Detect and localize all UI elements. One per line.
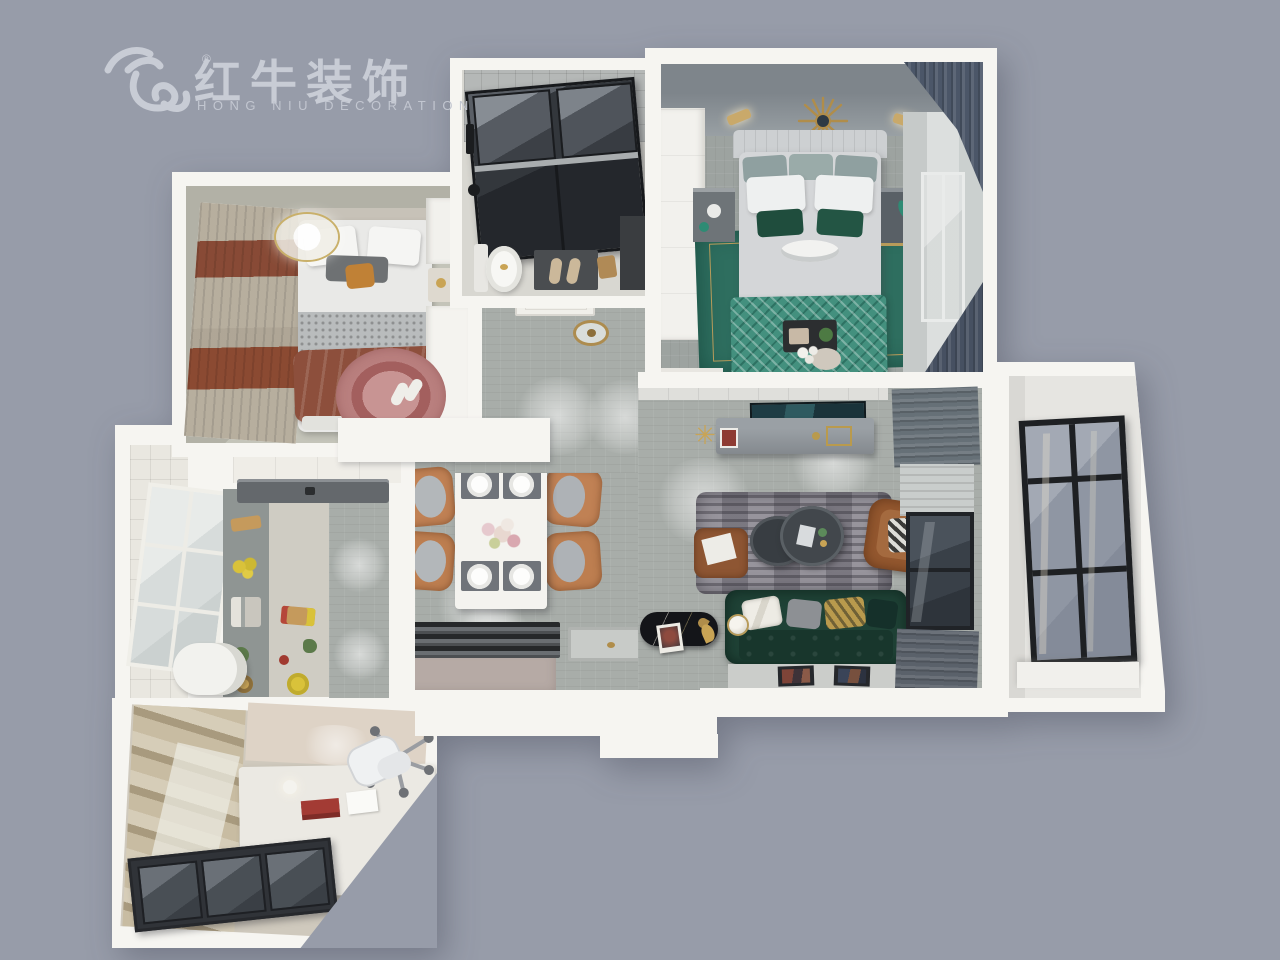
sofa-seat-front [739,630,893,660]
window-reflection [1087,431,1097,652]
sheer-blind [900,464,974,516]
greens [303,639,317,653]
living-window [906,512,974,630]
room-secondary-bedroom [172,172,482,457]
gold-floor-ornament [573,320,609,346]
apartment-floor-plan: ✳ [0,0,1280,960]
dining-chair [543,530,603,592]
pillow-white [814,175,874,214]
window-mullion [1069,424,1087,658]
plate [509,564,534,589]
downlight-pool [331,537,387,593]
red-decor-box [720,428,738,448]
yellow-bowl [287,673,309,695]
tray-book [789,328,809,344]
red-rose [279,655,289,665]
hood-light [305,487,315,495]
pillow-green [816,208,864,237]
shower-fixture [466,124,474,154]
shower-head [468,184,480,196]
pillow-green [756,208,804,237]
pillow-gray [786,598,823,629]
table-magazine [796,525,816,548]
chair-cushion [413,539,448,583]
pillow-dark-green [865,598,899,630]
art-image [838,669,866,684]
nightstand-left [693,188,735,242]
ottoman [694,528,748,578]
bull-swoosh-icon [98,40,198,122]
wall-art [834,665,871,686]
watermark-logo: ® 红牛装饰 HONG NIU DECORATION [98,28,458,123]
gold-frame-decor [826,426,852,446]
glass-panel-reflection [472,89,556,166]
kitchen-counter [269,489,329,697]
room-study [112,698,437,948]
room-living-room: ✳ [638,372,1008,717]
gray-curtain-top [892,387,981,468]
cutting-board [230,515,262,532]
slipper [402,377,424,403]
room-balcony [995,362,1165,712]
leaning-art-card [656,622,684,653]
keys-decor [607,642,615,648]
room-master-bedroom [645,48,997,398]
ornament-center [587,329,596,337]
wall-art [778,665,815,686]
pillow-mustard [345,263,375,290]
range-hood [237,479,389,503]
pillow-white [746,175,806,214]
ottoman-paper [701,533,736,565]
desk-lamp [283,780,297,794]
gray-curtain-bottom [895,629,979,692]
green-velvet-sofa [725,590,907,664]
water-heater [173,643,247,695]
window-sill [1017,662,1139,688]
dining-chair [543,466,604,529]
bookcase-glass-panel [201,854,267,918]
bath-mat [534,250,598,290]
wall-slab-entrance [415,690,717,736]
window-frame-hint [921,172,965,322]
round-ceiling-light [276,214,338,260]
living-top-wall [638,372,1008,388]
plate [467,564,492,589]
room-kitchen [115,425,415,717]
window-reflection [1039,433,1050,654]
toilet-gold-button [500,264,508,270]
living-bottom-wall [700,688,1008,717]
kitchen-floor [329,489,389,717]
plate [467,472,492,497]
dining-table [455,453,547,609]
glass-divider [555,165,566,253]
pearl-decor-ball [729,616,747,634]
pillow-gold-leaf [824,596,867,630]
chair-cushion [552,539,587,583]
food-board [280,606,315,627]
downlight-pool [333,627,387,681]
window-mullion [168,491,194,667]
plate [509,472,534,497]
tray-plant [819,328,833,342]
bookcase-glass-panel [137,861,203,925]
gold-dot-decor [812,432,820,440]
slipper [565,257,581,285]
art-image [660,626,681,648]
living-ceiling-edge [638,388,888,400]
lemons [229,555,263,581]
gold-sparkle-decor: ✳ [690,420,720,450]
wall-slab-entrance-step [600,734,718,758]
table-gold-item [820,540,827,547]
flower-centerpiece [469,511,533,557]
toiletry-bag [597,255,618,279]
wall-sconce [726,108,752,126]
bookcase-glass-panel [265,847,331,911]
room-bathroom [450,58,662,308]
table-plant [818,528,827,537]
slipper [548,257,563,284]
window-reflection [911,522,935,622]
art-image [782,669,810,684]
coffee-table-large [780,506,844,566]
media-console [716,418,874,454]
bathroom-cabinet [620,216,646,290]
white-flowers [795,344,821,366]
black-framed-window-wall [1019,415,1138,666]
glass-panel-reflection [556,82,638,158]
render-canvas: { "background_color": "#979CA9", "waterm… [0,0,1280,960]
nightstand-plant [699,222,709,232]
accent-bowl-pillow [781,240,839,262]
pillow-marble-white [741,595,784,631]
nightstand-lamp [707,204,721,218]
window-mullion [942,175,945,319]
gold-lamp [436,278,446,288]
red-books [301,798,340,815]
toilet [486,246,522,292]
logo-brand-en: HONG NIU DECORATION [197,98,475,113]
chair-cushion [551,474,587,519]
jars [231,597,261,627]
wall-slab-dining-top [338,418,550,462]
chair-cushion [412,474,448,519]
